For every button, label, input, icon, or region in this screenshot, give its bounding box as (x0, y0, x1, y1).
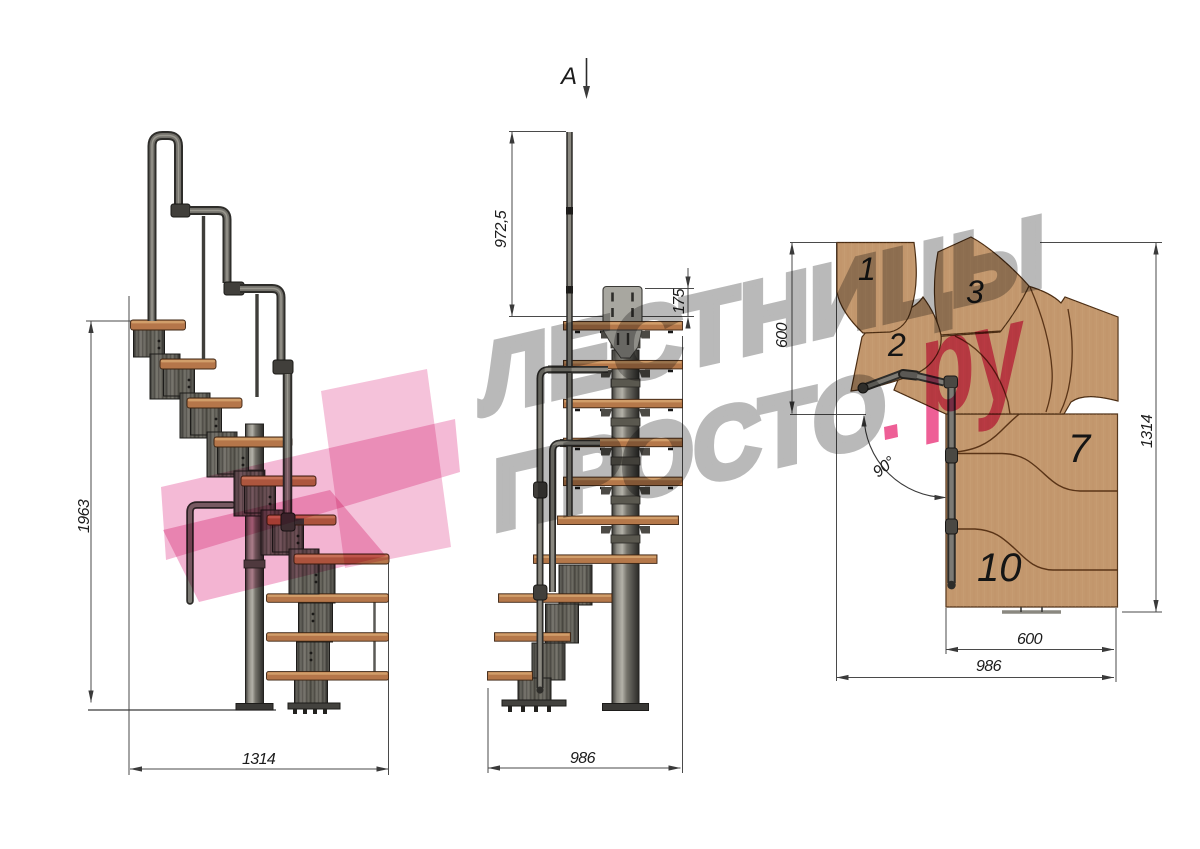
svg-text:1314: 1314 (1139, 414, 1156, 448)
svg-text:600: 600 (1017, 631, 1043, 648)
svg-text:A: A (559, 63, 577, 90)
svg-text:1314: 1314 (242, 751, 276, 768)
svg-text:7: 7 (1068, 427, 1092, 471)
svg-text:10: 10 (977, 546, 1022, 590)
svg-text:1963: 1963 (76, 499, 93, 533)
svg-text:ру: ру (920, 268, 1024, 447)
svg-text:986: 986 (570, 750, 596, 767)
svg-text:972,5: 972,5 (493, 210, 510, 248)
svg-text:986: 986 (976, 658, 1002, 675)
